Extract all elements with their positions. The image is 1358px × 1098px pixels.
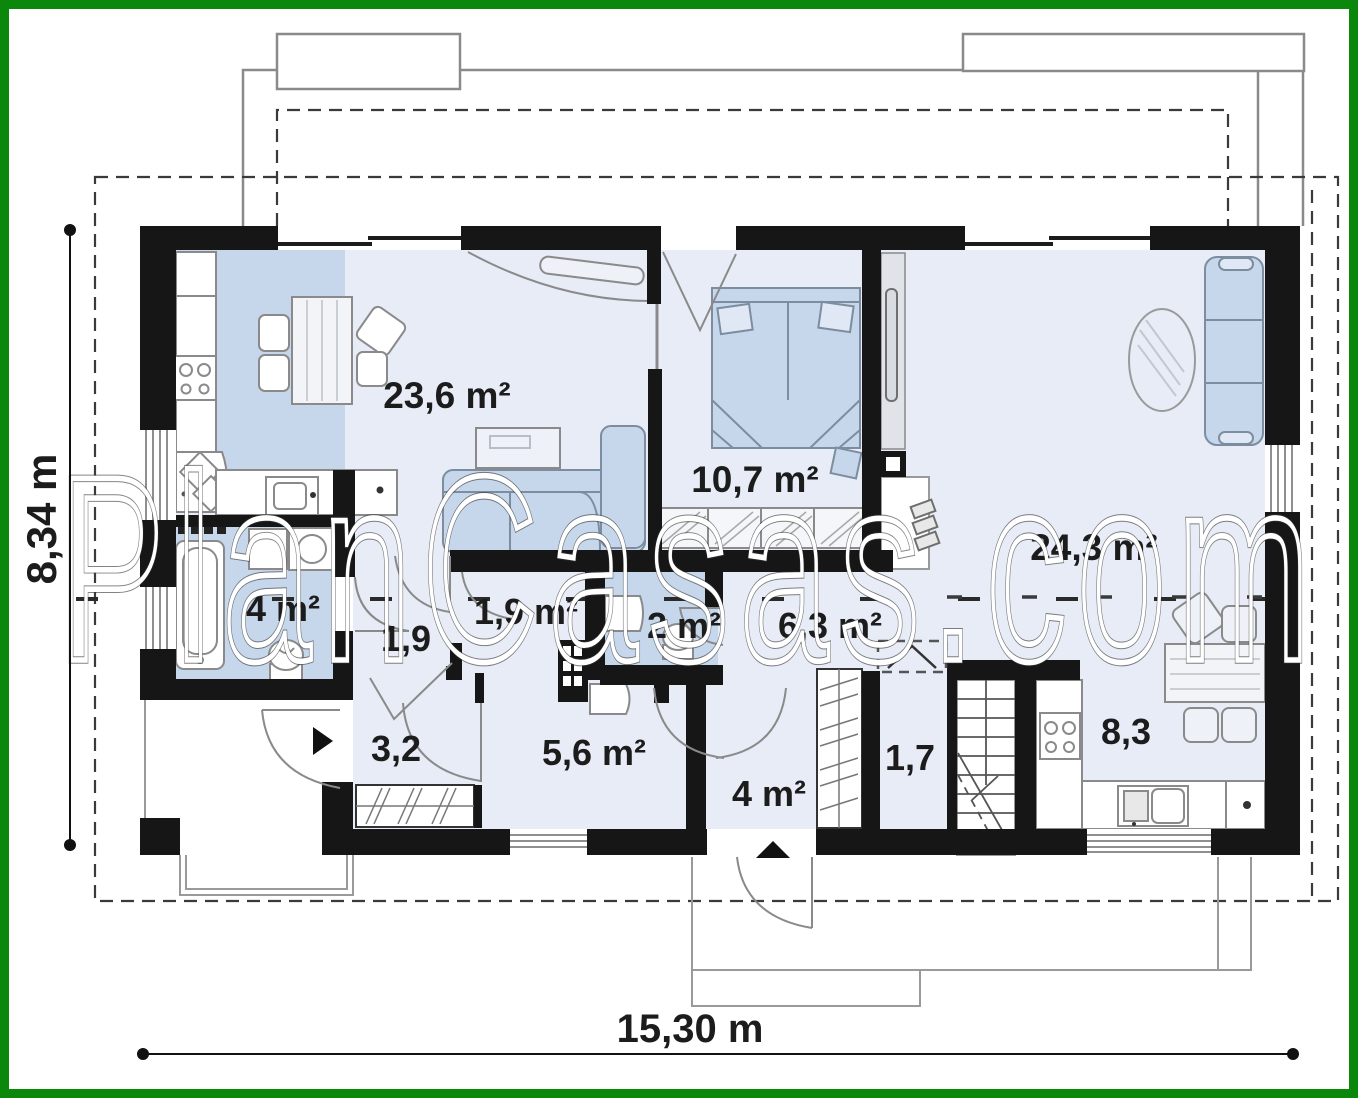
svg-text:8,34 m: 8,34 m [18,454,65,585]
svg-text:23,6 m²: 23,6 m² [383,375,511,416]
svg-text:1,7: 1,7 [885,737,935,778]
svg-text:3,2: 3,2 [371,728,421,769]
svg-text:5,6 m²: 5,6 m² [542,732,646,773]
svg-text:8,3: 8,3 [1101,711,1151,752]
svg-text:PlanCasas.com: PlanCasas.com [58,422,1321,717]
svg-text:4 m²: 4 m² [732,773,806,814]
svg-text:15,30 m: 15,30 m [617,1007,764,1051]
